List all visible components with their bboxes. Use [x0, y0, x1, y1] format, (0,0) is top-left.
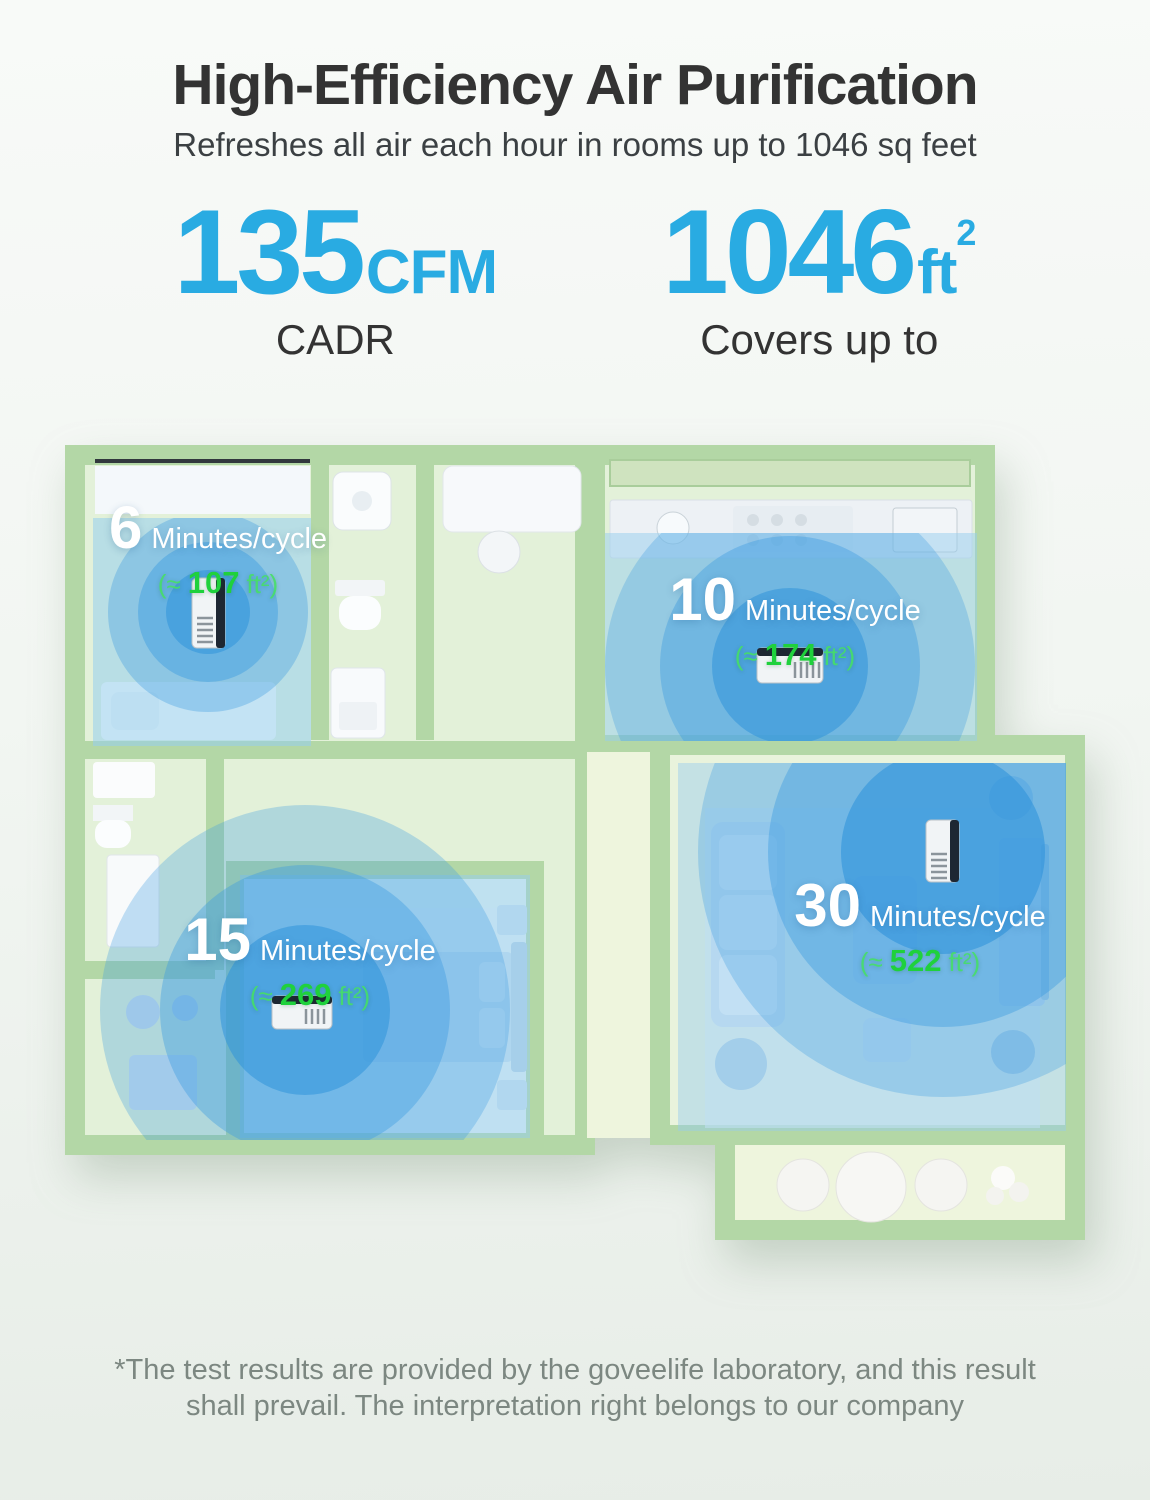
room-label-kitchen: 10 Minutes/cycle (≈174ft²)	[645, 570, 945, 673]
footnote-line: *The test results are provided by the go…	[0, 1352, 1150, 1388]
stat-cadr-value: 135	[174, 192, 362, 312]
air-purifier-icon	[926, 820, 959, 882]
stat-coverage-sup: 2	[956, 212, 976, 254]
room-label-bedroom-main: 15 Minutes/cycle (≈269ft²)	[160, 910, 460, 1013]
product-infographic: High-Efficiency Air Purification Refresh…	[0, 0, 1150, 1500]
room-area: (≈269ft²)	[160, 977, 460, 1013]
stat-coverage-value: 1046	[662, 192, 913, 312]
footnote: *The test results are provided by the go…	[0, 1352, 1150, 1425]
stat-coverage-value-row: 1046ft2	[662, 192, 976, 312]
room-label-bedroom-small: 6 Minutes/cycle (≈107ft²)	[68, 498, 368, 601]
room-area: (≈522ft²)	[770, 943, 1070, 979]
footnote-line: shall prevail. The interpretation right …	[0, 1388, 1150, 1424]
stat-cadr-unit: CFM	[366, 237, 497, 308]
room-cycle-time: 10 Minutes/cycle	[645, 570, 945, 630]
room-area: (≈174ft²)	[645, 637, 945, 673]
stat-cadr-label: CADR	[174, 316, 498, 364]
stat-coverage-unit: ft	[917, 237, 956, 308]
stat-cadr: 135CFM CADR	[174, 192, 498, 364]
room-cycle-time: 6 Minutes/cycle	[68, 498, 368, 558]
stats-row: 135CFM CADR 1046ft2 Covers up to	[0, 192, 1150, 364]
room-area: (≈107ft²)	[68, 565, 368, 601]
room-cycle-time: 15 Minutes/cycle	[160, 910, 460, 970]
room-cycle-time: 30 Minutes/cycle	[770, 876, 1070, 936]
stat-cadr-value-row: 135CFM	[174, 192, 498, 312]
page-subtitle: Refreshes all air each hour in rooms up …	[0, 126, 1150, 164]
stat-coverage: 1046ft2 Covers up to	[662, 192, 976, 364]
stat-coverage-label: Covers up to	[662, 316, 976, 364]
room-label-living-room: 30 Minutes/cycle (≈522ft²)	[770, 876, 1070, 979]
page-title: High-Efficiency Air Purification	[0, 52, 1150, 118]
